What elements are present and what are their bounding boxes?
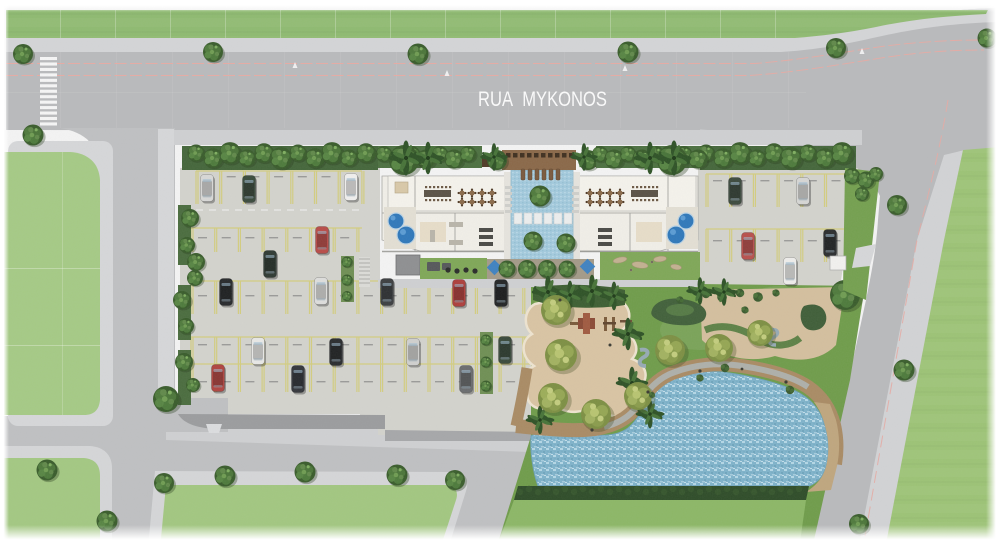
svg-text:RUA MYKONOS: RUA MYKONOS [478,88,607,111]
